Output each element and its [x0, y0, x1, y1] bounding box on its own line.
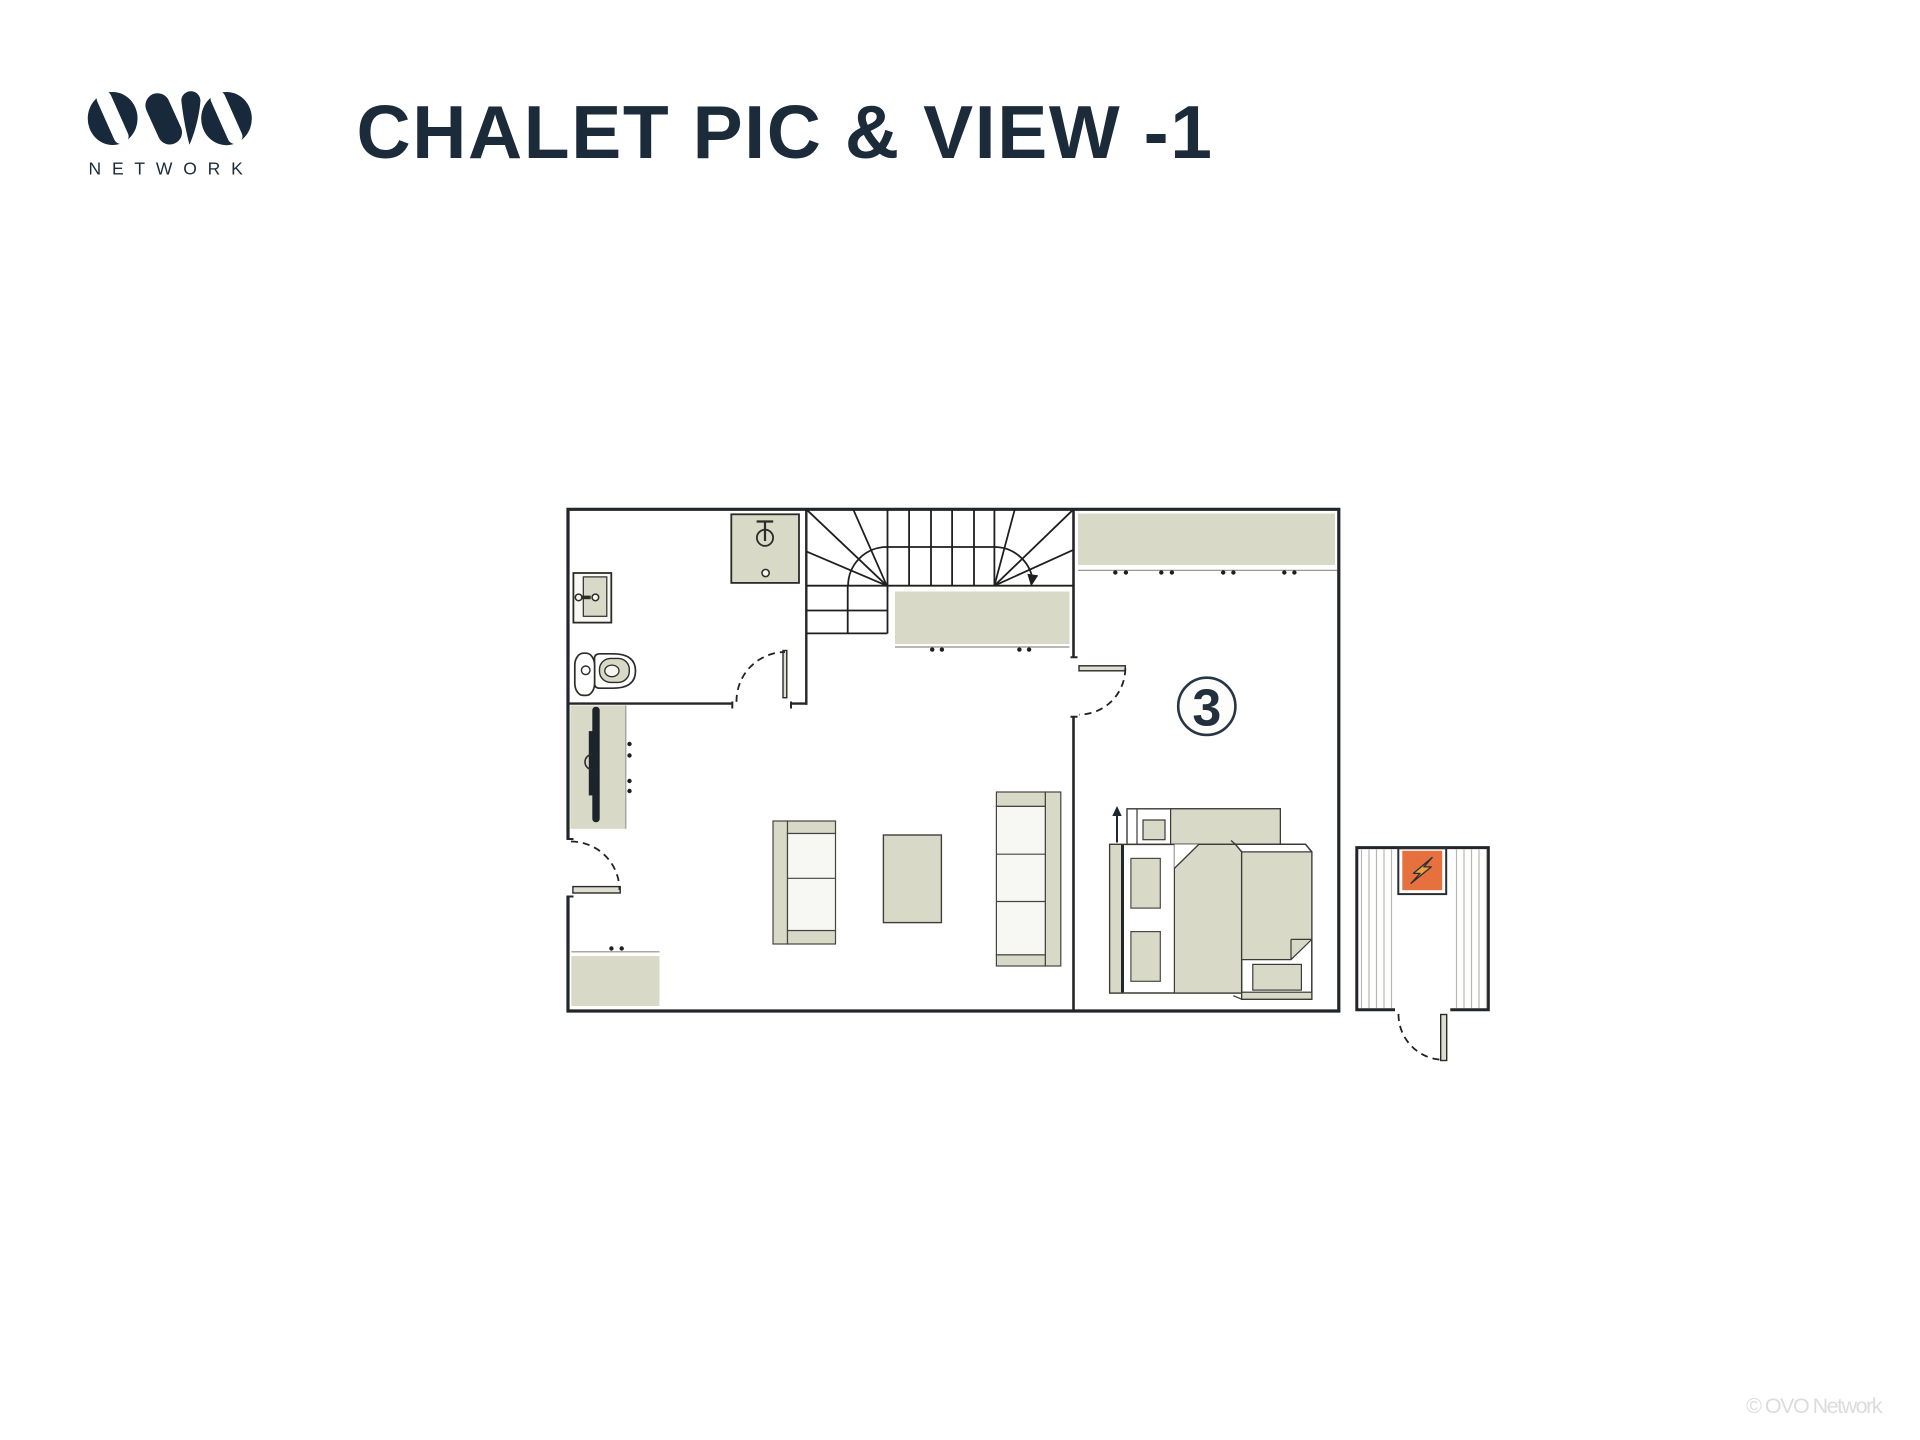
svg-text:© OVO Network: © OVO Network — [1746, 1394, 1883, 1418]
svg-text:CHALET PIC & VIEW -1: CHALET PIC & VIEW -1 — [357, 90, 1214, 174]
svg-text:3: 3 — [1192, 679, 1221, 737]
svg-text:NETWORK: NETWORK — [89, 159, 254, 179]
